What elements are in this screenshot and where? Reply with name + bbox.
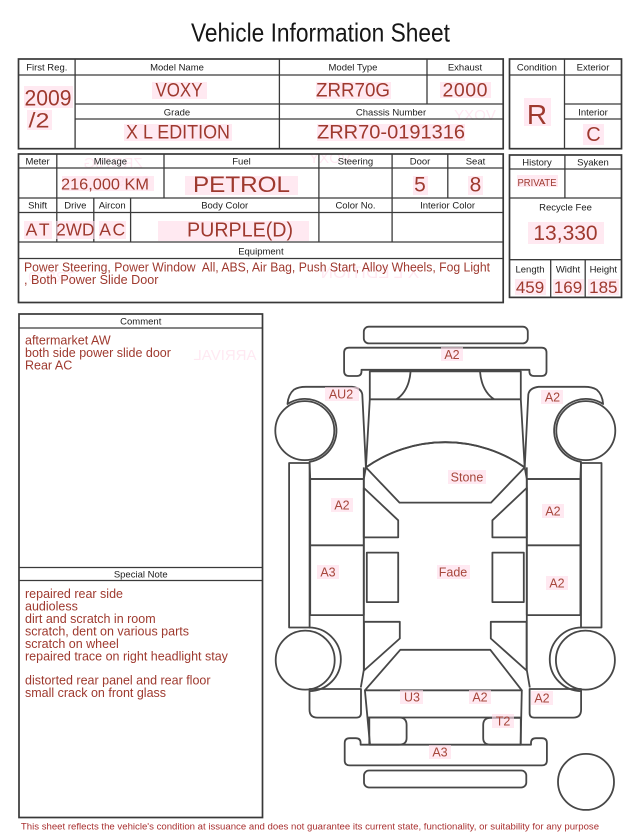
svg-text:185: 185 [589,278,617,297]
svg-text:AU2: AU2 [329,388,353,402]
svg-text:A2: A2 [545,505,560,519]
svg-text:Aircon: Aircon [99,201,126,212]
svg-text:Syaken: Syaken [577,158,609,169]
svg-text:A2: A2 [549,577,564,591]
svg-text:8: 8 [470,174,482,197]
svg-text:PETROL: PETROL [193,172,290,197]
svg-text:169: 169 [554,278,582,297]
svg-text:T2: T2 [496,715,511,729]
svg-text:A2: A2 [334,499,349,513]
svg-text:Mileage: Mileage [94,157,127,168]
svg-text:Exterior: Exterior [577,63,610,74]
svg-text:A2: A2 [545,391,560,405]
svg-text:Door: Door [410,157,431,168]
svg-text:A2: A2 [534,692,549,706]
svg-text:216,000 KM: 216,000 KM [61,177,149,194]
svg-text:Comment: Comment [120,317,162,328]
svg-text:ARRIVAL: ARRIVAL [193,347,256,364]
svg-text:Fuel: Fuel [232,157,250,168]
svg-text:A3: A3 [432,746,447,760]
svg-text:Rear AC: Rear AC [25,359,72,373]
svg-text:Model Name: Model Name [150,63,204,74]
svg-text:PRIVATE: PRIVATE [518,177,557,189]
svg-text:Shift: Shift [28,201,47,212]
svg-text:Special Note: Special Note [114,570,168,581]
svg-text:This sheet reflects the vehicl: This sheet reflects the vehicle's condit… [21,822,599,833]
svg-text:5: 5 [414,174,426,197]
svg-text:Chassis Number: Chassis Number [356,108,426,119]
svg-text:Equipment: Equipment [238,247,284,258]
svg-text:Model Type: Model Type [329,63,378,74]
svg-text:Meter: Meter [25,157,49,168]
svg-text:R: R [527,99,547,130]
svg-text:Stone: Stone [451,471,484,485]
svg-text:A2: A2 [444,348,459,362]
svg-text:History: History [522,158,552,169]
svg-text:Widht: Widht [556,265,581,276]
svg-text:repaired trace on right headli: repaired trace on right headlight stay [25,650,229,664]
svg-text:A2: A2 [472,691,487,705]
svg-text:Body Color: Body Color [201,201,248,212]
svg-text:Steering: Steering [338,157,373,168]
svg-text:A3: A3 [320,566,335,580]
svg-text:AC: AC [99,220,125,240]
svg-text:Fade: Fade [439,566,468,580]
svg-text:PURPLE(D): PURPLE(D) [187,220,293,242]
svg-text:Seat: Seat [466,157,486,168]
svg-text:Grade: Grade [164,108,190,119]
svg-text:Recycle Fee: Recycle Fee [539,203,592,214]
svg-text:Interior: Interior [578,108,608,119]
svg-text:Color No.: Color No. [335,201,375,212]
svg-text:C: C [586,124,600,146]
svg-text:Length: Length [515,265,544,276]
svg-text:, Both Power Slide Door: , Both Power Slide Door [24,273,158,287]
svg-text:Exhaust: Exhaust [448,63,483,74]
svg-text:VOXY: VOXY [156,80,203,102]
svg-text:Drive: Drive [64,201,86,212]
svg-text:small crack on front glass: small crack on front glass [25,686,166,700]
svg-text:/2: /2 [29,110,50,133]
svg-text:X L EDITION: X L EDITION [126,122,230,144]
svg-text:U3: U3 [404,691,420,705]
svg-text:Condition: Condition [517,63,557,74]
svg-text:2000: 2000 [443,80,488,102]
svg-text:13,330: 13,330 [533,222,597,245]
svg-text:First Reg.: First Reg. [26,63,67,74]
svg-text:2WD: 2WD [56,220,94,240]
svg-text:2009: 2009 [25,86,72,111]
svg-text:ZRR70G: ZRR70G [316,80,390,102]
svg-text:Height: Height [590,265,618,276]
svg-text:459: 459 [516,278,544,297]
svg-text:Vehicle Information Sheet: Vehicle Information Sheet [191,18,451,48]
svg-text:Interior Color: Interior Color [420,201,475,212]
svg-text:ZRR70-0191316: ZRR70-0191316 [317,122,465,144]
